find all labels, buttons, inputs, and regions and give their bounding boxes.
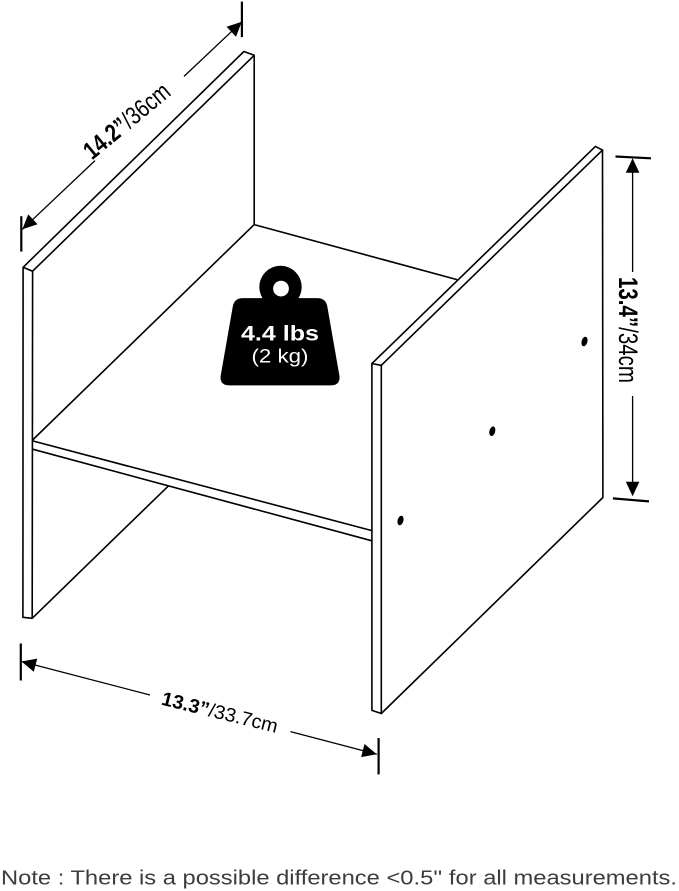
svg-text:Note : There is a possible dif: Note : There is a possible difference <0… (1, 867, 677, 890)
svg-text:4.4 lbs: 4.4 lbs (241, 322, 319, 346)
svg-text:13.4”/34cm: 13.4”/34cm (613, 277, 643, 383)
svg-text:(2 kg): (2 kg) (252, 346, 309, 368)
